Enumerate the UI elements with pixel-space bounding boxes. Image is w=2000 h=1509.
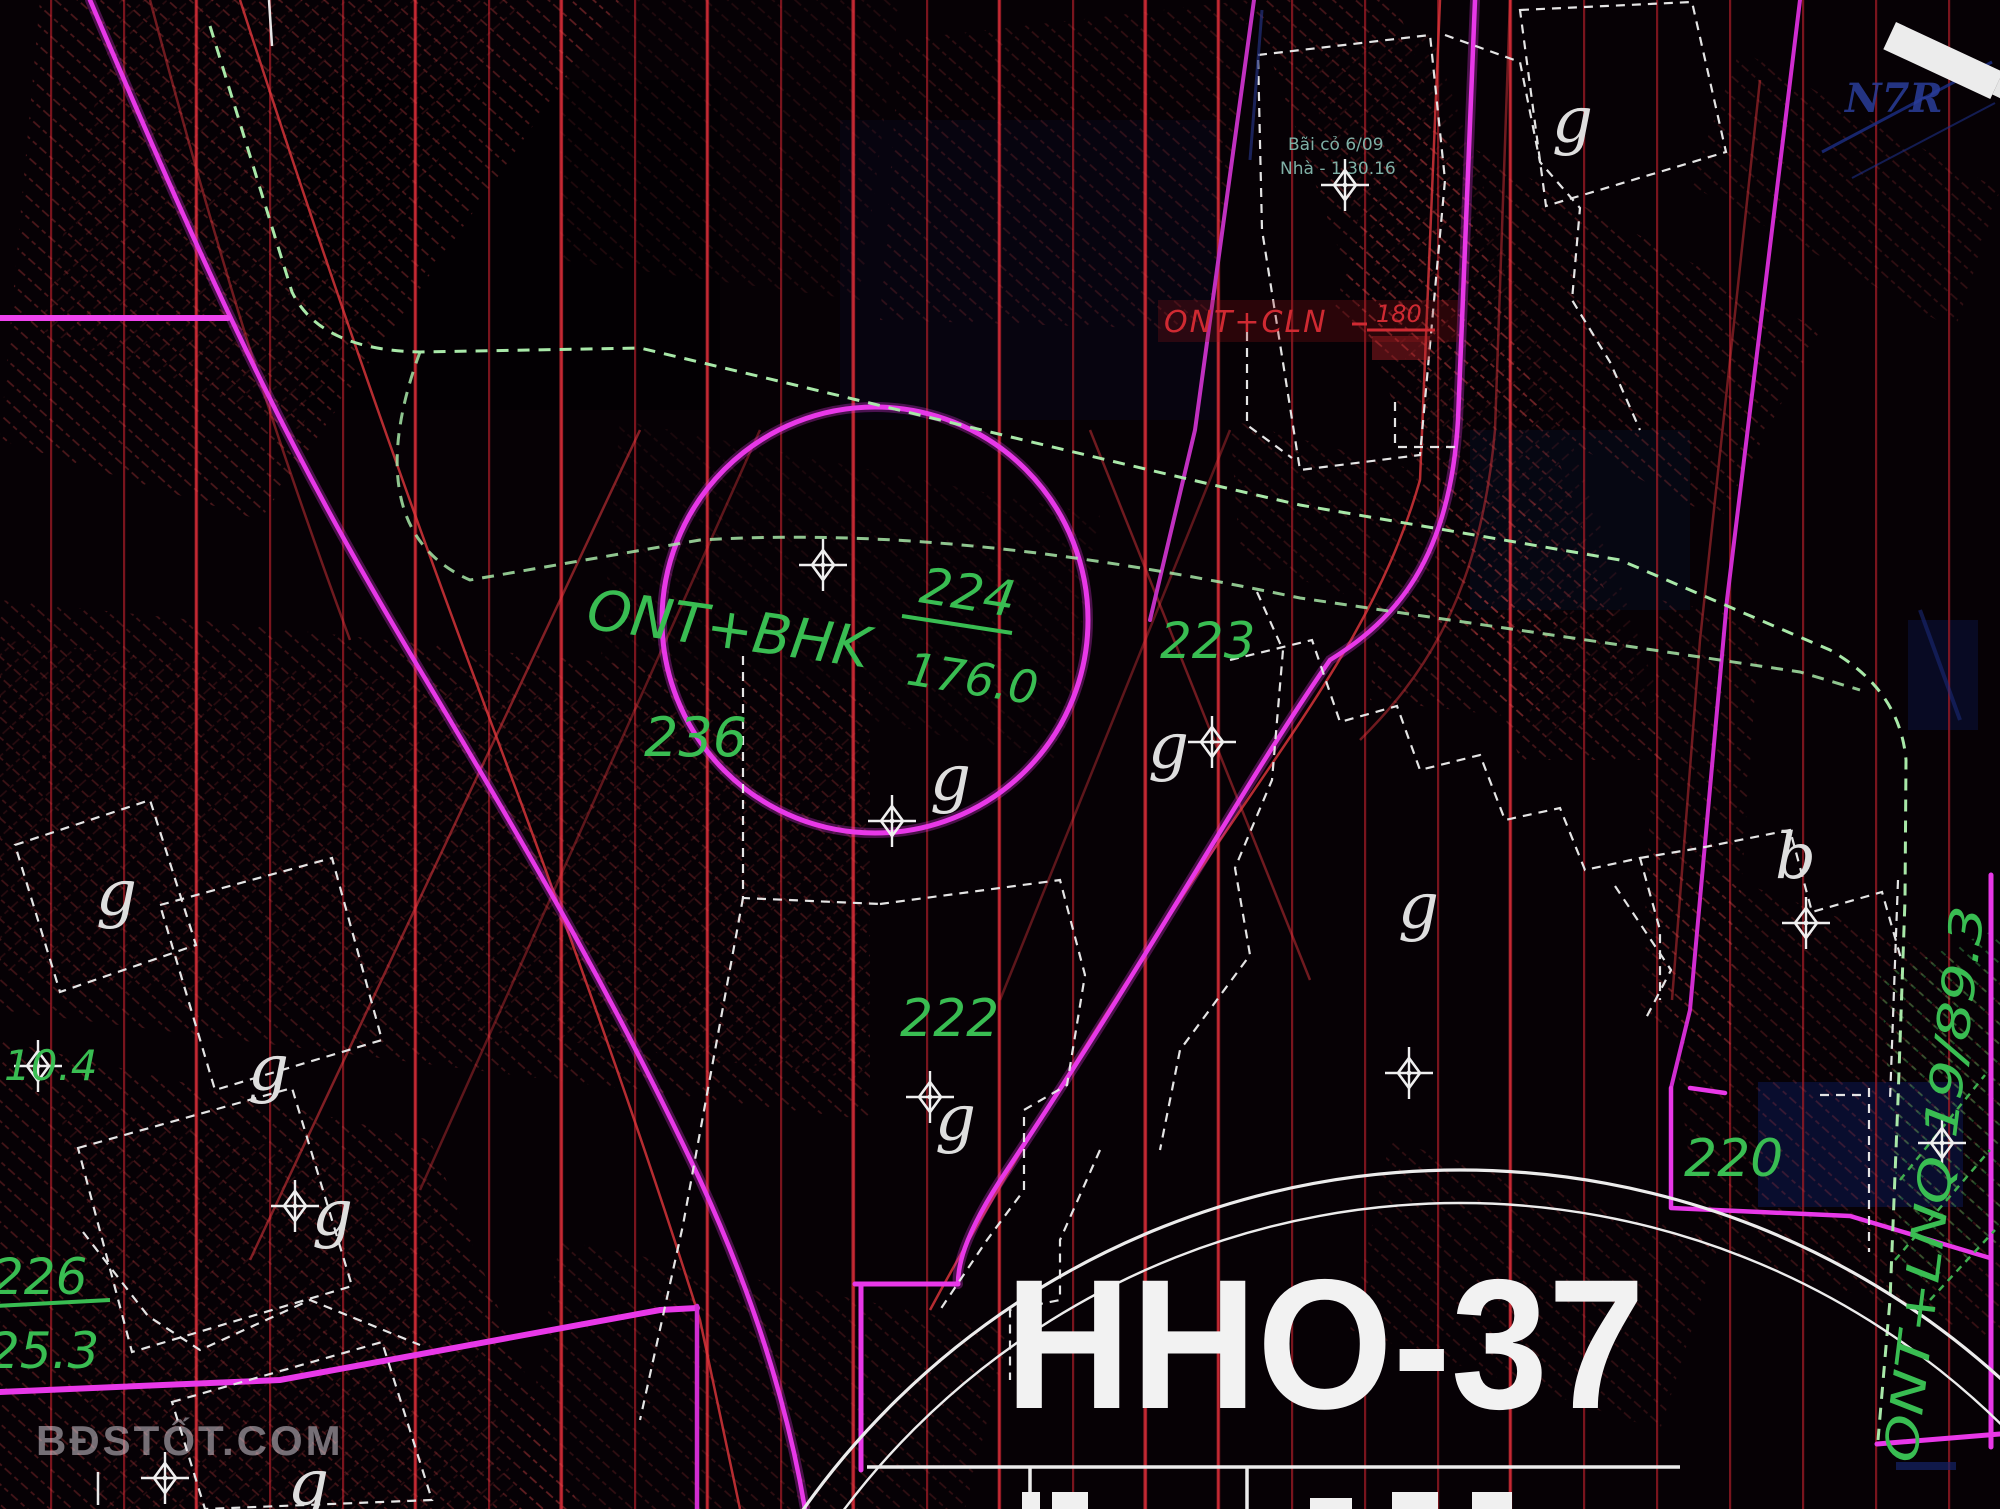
corner-ref-label: N7R — [1843, 75, 1943, 122]
red-value-label: 180 — [1376, 300, 1422, 328]
note-line-2: Nhà - 1 30.16 — [1280, 159, 1396, 179]
building-marker-g: g — [1398, 870, 1439, 944]
parcel-label-223: 223 — [1160, 612, 1255, 670]
building-marker-g: g — [96, 857, 137, 931]
note-line-1: Bãi cỏ 6/09 — [1288, 135, 1384, 155]
zone-code-label: HHO-37 — [1005, 1242, 1645, 1448]
parcel-label-220: 220 — [1684, 1129, 1783, 1189]
watermark: BĐSTỐT.COM — [36, 1416, 344, 1464]
building-marker-g: g — [1148, 710, 1189, 784]
building-marker-g: g — [930, 742, 971, 816]
edge-dimension-104: 10.4 — [4, 1041, 98, 1090]
parcel-area-253: 25.3 — [0, 1322, 99, 1380]
cad-map-screenshot: ONT+CLN 180 ONT+BHK 224 176.0 236 223 22… — [0, 0, 2000, 1509]
building-marker-g: g — [312, 1177, 353, 1251]
cadastral-map-canvas[interactable]: ONT+CLN 180 ONT+BHK 224 176.0 236 223 22… — [0, 0, 2000, 1509]
building-marker-g: g — [935, 1082, 976, 1156]
parcel-label-222: 222 — [900, 989, 999, 1049]
parcel-label-226: 226 — [0, 1248, 87, 1306]
building-marker-b: b — [1775, 820, 1816, 894]
red-land-use-label: ONT+CLN — [1164, 305, 1328, 340]
building-marker-g: g — [1552, 84, 1593, 158]
building-marker-g: g — [248, 1032, 289, 1106]
parcel-label-236: 236 — [644, 706, 747, 769]
